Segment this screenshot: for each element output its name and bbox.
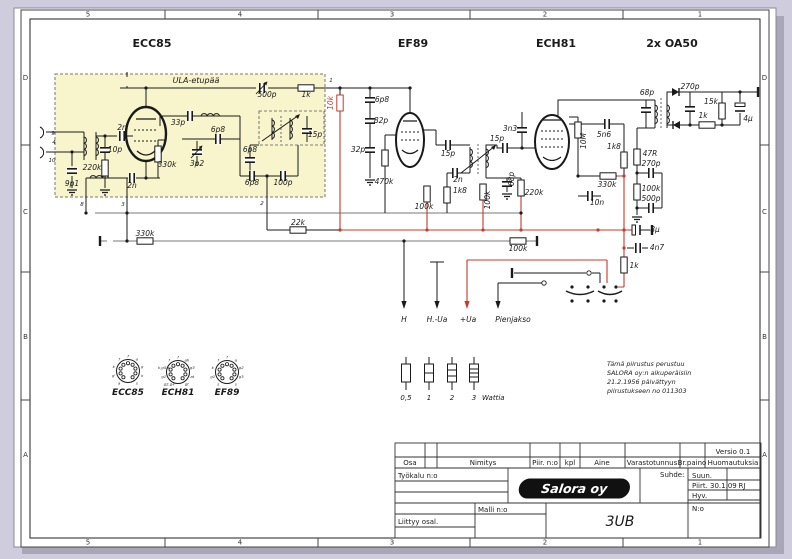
zone-bottom-3: 3 <box>390 539 394 547</box>
socket-pin-label: g3 <box>190 365 195 370</box>
component-label: 270p <box>680 82 699 91</box>
ula-region-label: ULA-etupää <box>173 76 220 85</box>
component-label: 220k <box>83 163 102 172</box>
component-label: 4n7 <box>650 243 665 252</box>
tb-tyokalu: Työkalu n:o <box>397 472 438 480</box>
component-symbol-33p <box>187 111 192 122</box>
socket-pin-label: gt <box>185 382 189 387</box>
component-symbol-1k8 <box>444 187 450 203</box>
socket-pin-label: k,g5,s <box>158 365 169 370</box>
watt-unit: Wattia <box>482 394 505 402</box>
component-symbol-330k <box>600 173 616 179</box>
zone-right-C: C <box>762 208 767 216</box>
switch-contact-open <box>542 281 546 285</box>
output-label-Ua: +Ua <box>460 315 477 324</box>
component-label: 100k <box>509 244 528 253</box>
screenshot: 5432154321DCBADCBA ULA-etupää <box>0 0 792 559</box>
tb-osa: Osa <box>403 459 416 467</box>
component-symbol-4n7 <box>635 243 640 254</box>
component-label: 5n6 <box>597 130 612 139</box>
pin-number-9: 9 <box>51 131 55 137</box>
zone-top-2: 2 <box>543 11 547 19</box>
pin-number-3: 3 <box>121 202 125 208</box>
tb-kpl: kpl <box>565 459 575 467</box>
component-label: 4μ <box>743 114 753 123</box>
salora-logo-text: Salora oy <box>540 481 609 496</box>
component-label: 100k <box>642 184 661 193</box>
component-symbol-270p <box>685 106 696 111</box>
socket-pin-label: s <box>136 381 138 386</box>
pin-number-8: 8 <box>80 202 84 208</box>
component-label: 82p <box>374 116 389 125</box>
socket-name-ecc85: ECC85 <box>112 388 144 398</box>
component-symbol-270p <box>648 168 653 179</box>
zone-bottom-4: 4 <box>238 539 243 547</box>
output-label-HUa: H.-Ua <box>427 315 448 324</box>
component-symbol-470k <box>382 150 388 166</box>
component-label: 15k <box>704 97 719 106</box>
component-symbol-2n <box>119 131 124 142</box>
component-label: 68p <box>507 172 516 187</box>
tb-piir-no: Piir. n:o <box>532 459 558 467</box>
component-symbol-22k <box>290 227 306 233</box>
component-label: 1k <box>629 261 639 270</box>
zone-right-A: A <box>762 451 767 459</box>
tb-hyv: Hyv. <box>692 492 707 500</box>
component-label: 9p1 <box>65 179 79 188</box>
svg-text:SALORA oy:n alkuperäisiin: SALORA oy:n alkuperäisiin <box>607 369 691 377</box>
component-label: 68p <box>640 88 655 97</box>
component-label: 6p8 <box>243 145 258 154</box>
component-label: 10n <box>590 198 605 207</box>
component-symbol-4μ <box>735 103 746 111</box>
zone-bottom-5: 5 <box>86 539 90 547</box>
watt-2: 2 <box>450 394 455 402</box>
component-label: 3p2 <box>190 159 205 168</box>
zone-right-B: B <box>762 333 767 341</box>
tb-versio: Versio 0.1 <box>716 448 751 456</box>
zone-bottom-2: 2 <box>543 539 547 547</box>
tb-piirt: Piirt. 30.1.09 <box>692 482 737 490</box>
component-label: 15p <box>490 134 505 143</box>
section-title-ecc85: ECC85 <box>133 37 172 50</box>
component-symbol-1k8 <box>621 152 627 168</box>
component-label: 100p <box>273 178 292 187</box>
component-label: 10p <box>108 145 123 154</box>
socket-name-ef89: EF89 <box>215 388 240 398</box>
tb-suhde: Suhde: <box>660 471 684 479</box>
pin-number-1: 1 <box>329 78 333 84</box>
socket-name-ech81: ECH81 <box>162 388 195 398</box>
section-title-ef89: EF89 <box>398 37 428 50</box>
pin-number-10: 10 <box>49 158 56 164</box>
component-label: 1k8 <box>607 142 621 151</box>
component-label: 1k8 <box>453 186 467 195</box>
component-label: 47R <box>643 149 658 158</box>
tb-varastotunnus: Varastotunnus <box>627 459 678 467</box>
zone-top-5: 5 <box>86 11 90 19</box>
switch-contact-open <box>587 271 591 275</box>
component-symbol-3n3 <box>517 127 528 132</box>
zone-right-D: D <box>762 74 767 82</box>
component-label: 500p <box>641 194 660 203</box>
component-symbol-6p8 <box>245 157 256 162</box>
component-symbol-15p <box>502 143 507 154</box>
component-symbol-100k <box>634 184 640 200</box>
component-symbol-220k <box>518 180 524 196</box>
component-symbol-9p1 <box>67 168 78 173</box>
component-label: 470k <box>375 177 394 186</box>
component-symbol-100k <box>424 186 430 202</box>
zone-left-A: A <box>23 451 28 459</box>
component-label: 330k <box>158 160 177 169</box>
component-label: 10M <box>579 132 588 149</box>
component-label: 15p <box>441 149 456 158</box>
component-label: 330k <box>598 180 617 189</box>
watt-3: 3 <box>472 394 476 402</box>
component-label: 1k <box>301 90 311 99</box>
component-label: 1k <box>698 111 708 120</box>
socket-pin-label: g1 <box>210 374 215 379</box>
tb-aine: Aine <box>594 459 609 467</box>
component-label: 22k <box>291 218 306 227</box>
component-symbol-68p <box>641 107 652 112</box>
zone-left-B: B <box>23 333 28 341</box>
component-label: 33p <box>171 118 186 127</box>
zone-top-4: 4 <box>238 11 243 19</box>
socket-pin-label: g2,g4 <box>164 382 175 387</box>
zone-bottom-1: 1 <box>698 539 702 547</box>
pin-number-2: 2 <box>260 201 264 207</box>
component-label: 6p8 <box>375 95 390 104</box>
component-symbol-1k <box>621 257 627 273</box>
component-label: 3n3 <box>503 124 518 133</box>
socket-pin-label: g1 <box>161 374 166 379</box>
tb-piirt-initials: RJ <box>739 482 746 490</box>
component-label: 270p <box>641 159 660 168</box>
component-label: 500p <box>257 90 276 99</box>
component-label: 10k <box>326 95 335 110</box>
zone-top-3: 3 <box>390 11 394 19</box>
component-label: 100k <box>483 190 492 209</box>
watt-1: 1 <box>427 394 431 402</box>
zone-left-C: C <box>23 208 28 216</box>
watt-0_5: 0,5 <box>400 394 412 402</box>
socket-pin-label: g' <box>112 373 115 378</box>
tb-malli: Malli n:o <box>478 506 507 514</box>
component-symbol-10k <box>337 95 343 111</box>
component-symbol-220k <box>102 160 108 176</box>
svg-text:piirustukseen no 011303: piirustukseen no 011303 <box>606 387 687 395</box>
tb-model: 3UB <box>606 514 635 530</box>
component-label: 6p8 <box>245 178 260 187</box>
component-symbol-5n6 <box>604 119 609 130</box>
tb-suun: Suun. <box>692 472 712 480</box>
component-label: 32p <box>351 145 366 154</box>
zone-top-1: 1 <box>698 11 702 19</box>
component-label: 330k <box>136 229 155 238</box>
component-symbol-8μ <box>632 225 640 236</box>
component-label: 2n <box>453 175 463 184</box>
socket-pin-label: at <box>190 374 194 379</box>
schematic-canvas: 5432154321DCBADCBA ULA-etupää <box>0 0 792 559</box>
tb-huomautuksia: Huomautuksia <box>708 459 759 467</box>
component-symbol-6p8 <box>365 97 376 102</box>
component-label: 8μ <box>650 225 660 234</box>
tb-br-paino: Br.paino <box>678 459 707 467</box>
component-symbol-47R <box>634 149 640 165</box>
zone-left-D: D <box>23 74 28 82</box>
component-symbol-330k <box>137 238 153 244</box>
socket-pin-label: g3 <box>239 374 244 379</box>
section-title-ech81: ECH81 <box>536 37 576 50</box>
component-label: 15p <box>308 130 323 139</box>
svg-text:Tämä piirustus perustuu: Tämä piirustus perustuu <box>607 360 684 368</box>
tb-no: N:o <box>692 505 704 513</box>
salora-logo: Salora oy <box>518 479 631 498</box>
component-label: 2n <box>117 123 127 132</box>
socket-pin-label: s <box>217 382 219 387</box>
section-title-2x-oa50: 2x OA50 <box>646 37 698 50</box>
socket-pin-label: ah <box>184 357 189 362</box>
component-symbol-32p <box>365 147 376 152</box>
component-label: 6p8 <box>211 125 226 134</box>
output-label-H: H <box>401 315 407 324</box>
component-label: 2n <box>127 181 137 190</box>
component-label: 220k <box>525 188 544 197</box>
component-symbol-6p8 <box>215 134 220 145</box>
svg-text:21.2.1956 päivättyyn: 21.2.1956 päivättyyn <box>607 378 676 386</box>
tb-nimitys: Nimitys <box>470 459 497 467</box>
pin-number-4: 4 <box>52 140 56 146</box>
tb-liittyy: Liittyy osal. <box>398 518 438 526</box>
component-symbol-15k <box>719 103 725 119</box>
output-label-Pienjakso: Pienjakso <box>495 315 531 324</box>
socket-pin-label: g2 <box>239 365 244 370</box>
component-symbol-500p <box>648 203 653 214</box>
component-label: 100k <box>415 202 434 211</box>
socket-pin-label: s <box>235 382 237 387</box>
component-symbol-1k <box>699 122 715 128</box>
